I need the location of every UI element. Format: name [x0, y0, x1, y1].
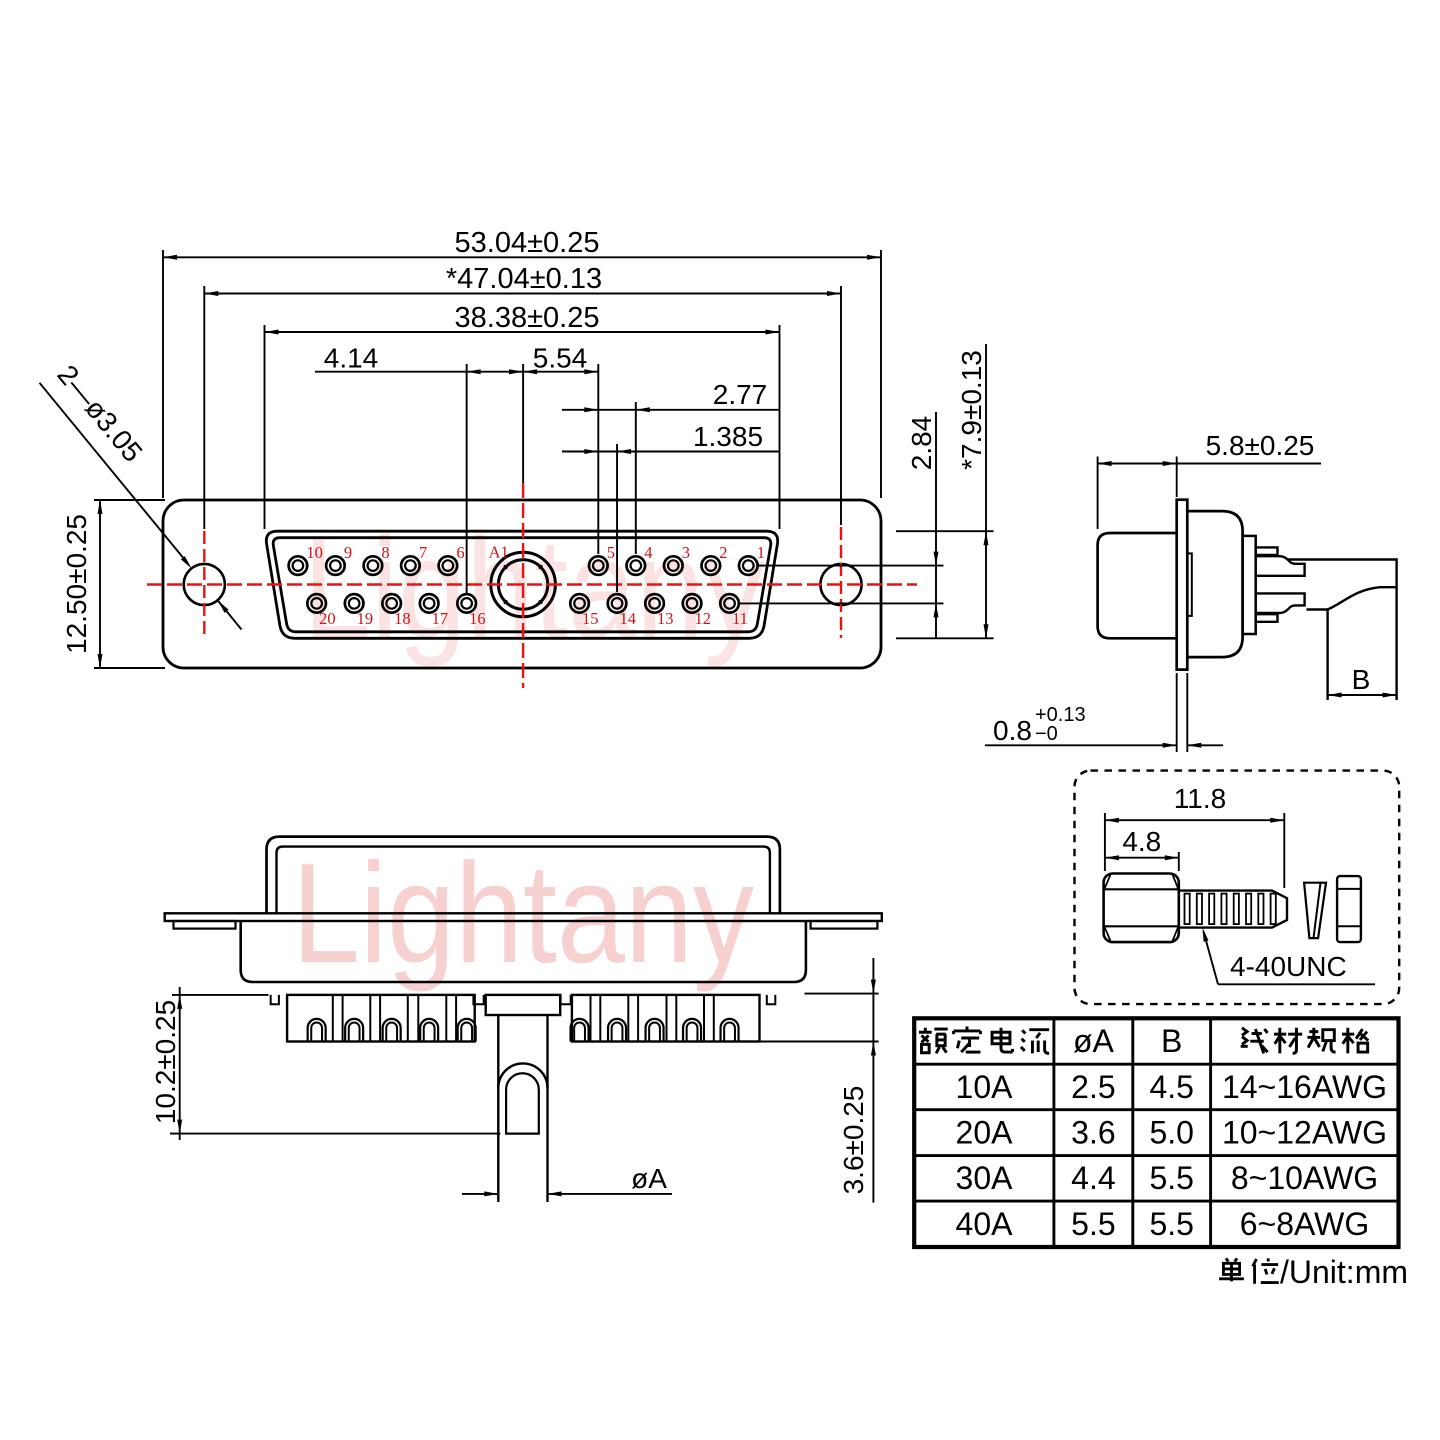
svg-text:2: 2: [719, 543, 727, 562]
svg-text:5.54: 5.54: [533, 343, 588, 374]
svg-text:12.50±0.25: 12.50±0.25: [61, 514, 92, 654]
svg-text:4-40UNC: 4-40UNC: [1230, 951, 1347, 982]
svg-text:6~8AWG: 6~8AWG: [1240, 1206, 1370, 1242]
svg-text:5.5: 5.5: [1149, 1160, 1193, 1196]
svg-text:13: 13: [657, 609, 674, 628]
svg-text:3.6±0.25: 3.6±0.25: [838, 1086, 869, 1195]
svg-text:30A: 30A: [956, 1160, 1014, 1196]
svg-text:6: 6: [456, 543, 464, 562]
svg-text:16: 16: [469, 609, 486, 628]
svg-text:2.5: 2.5: [1071, 1069, 1115, 1105]
svg-text:10~12AWG: 10~12AWG: [1222, 1115, 1387, 1151]
svg-text:10.2±0.25: 10.2±0.25: [150, 1000, 181, 1124]
svg-text:4.8: 4.8: [1122, 826, 1161, 857]
svg-text:20A: 20A: [956, 1115, 1014, 1151]
svg-text:2.77: 2.77: [713, 379, 768, 410]
svg-text:4.14: 4.14: [324, 343, 379, 374]
svg-text:2.84: 2.84: [906, 416, 937, 471]
svg-text:/Unit:mm: /Unit:mm: [1280, 1254, 1408, 1290]
svg-text:3.6: 3.6: [1071, 1115, 1115, 1151]
svg-text:9: 9: [344, 543, 352, 562]
svg-text:53.04±0.25: 53.04±0.25: [455, 227, 600, 259]
svg-text:5.5: 5.5: [1149, 1206, 1193, 1242]
svg-text:15: 15: [582, 609, 599, 628]
svg-text:øA: øA: [1073, 1023, 1115, 1059]
svg-text:11: 11: [732, 609, 748, 628]
svg-text:14: 14: [620, 609, 637, 628]
svg-text:8: 8: [381, 543, 389, 562]
svg-text:1.385: 1.385: [693, 421, 763, 452]
svg-text:B: B: [1352, 664, 1371, 695]
svg-text:3: 3: [682, 543, 690, 562]
svg-text:øA: øA: [631, 1163, 667, 1194]
svg-text:17: 17: [432, 609, 449, 628]
svg-text:10: 10: [306, 543, 323, 562]
svg-text:11.8: 11.8: [1174, 783, 1226, 814]
svg-text:5.0: 5.0: [1149, 1115, 1193, 1151]
svg-text:5: 5: [607, 543, 615, 562]
svg-text:Lightany: Lightany: [303, 509, 765, 668]
svg-text:4: 4: [644, 543, 652, 562]
svg-text:B: B: [1161, 1023, 1182, 1059]
svg-text:10A: 10A: [956, 1069, 1014, 1105]
svg-text:5.8±0.25: 5.8±0.25: [1206, 430, 1315, 461]
svg-text:5.5: 5.5: [1071, 1206, 1115, 1242]
svg-text:*7.9±0.13: *7.9±0.13: [956, 350, 987, 470]
svg-text:*47.04±0.13: *47.04±0.13: [446, 263, 602, 295]
svg-text:14~16AWG: 14~16AWG: [1222, 1069, 1387, 1105]
svg-text:4.4: 4.4: [1071, 1160, 1115, 1196]
svg-text:18: 18: [394, 609, 411, 628]
svg-text:1: 1: [757, 543, 765, 562]
svg-text:8~10AWG: 8~10AWG: [1231, 1160, 1378, 1196]
svg-text:20: 20: [319, 609, 336, 628]
svg-text:−0: −0: [1035, 723, 1058, 745]
svg-text:4.5: 4.5: [1149, 1069, 1193, 1105]
svg-text:12: 12: [695, 609, 712, 628]
svg-text:7: 7: [419, 543, 427, 562]
svg-text:0.8: 0.8: [993, 715, 1032, 746]
svg-text:19: 19: [357, 609, 374, 628]
svg-text:40A: 40A: [956, 1206, 1014, 1242]
svg-text:A1: A1: [489, 543, 509, 562]
svg-text:38.38±0.25: 38.38±0.25: [455, 302, 600, 334]
